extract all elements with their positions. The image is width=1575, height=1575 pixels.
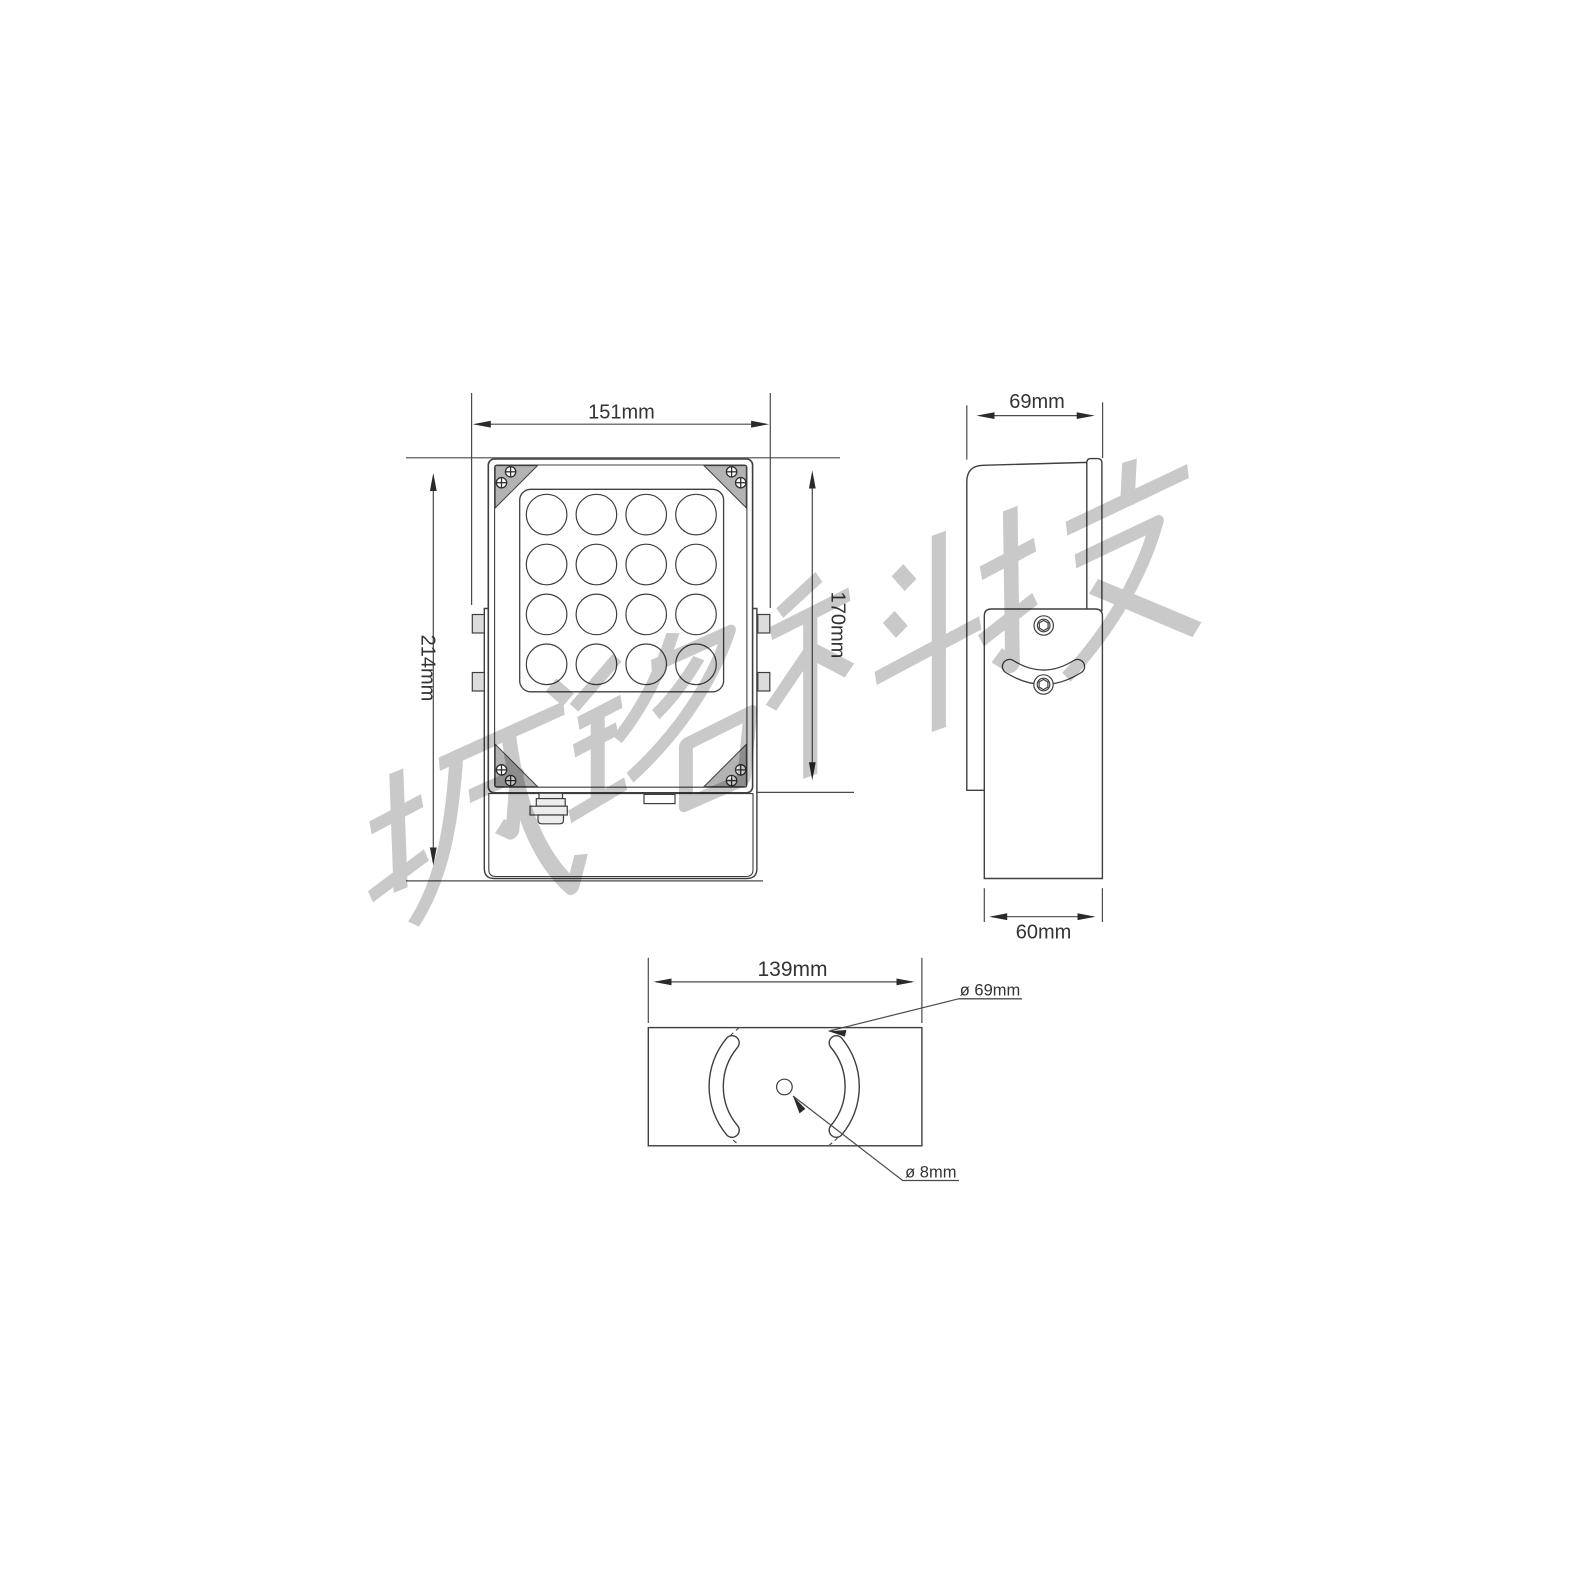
svg-text:60mm: 60mm — [1016, 922, 1072, 944]
svg-text:151mm: 151mm — [588, 402, 655, 424]
svg-text:69mm: 69mm — [1009, 391, 1065, 413]
svg-text:214mm: 214mm — [417, 635, 439, 702]
svg-text:139mm: 139mm — [757, 958, 827, 981]
svg-text:ø 69mm: ø 69mm — [960, 982, 1021, 1000]
svg-text:ø 8mm: ø 8mm — [905, 1164, 956, 1182]
